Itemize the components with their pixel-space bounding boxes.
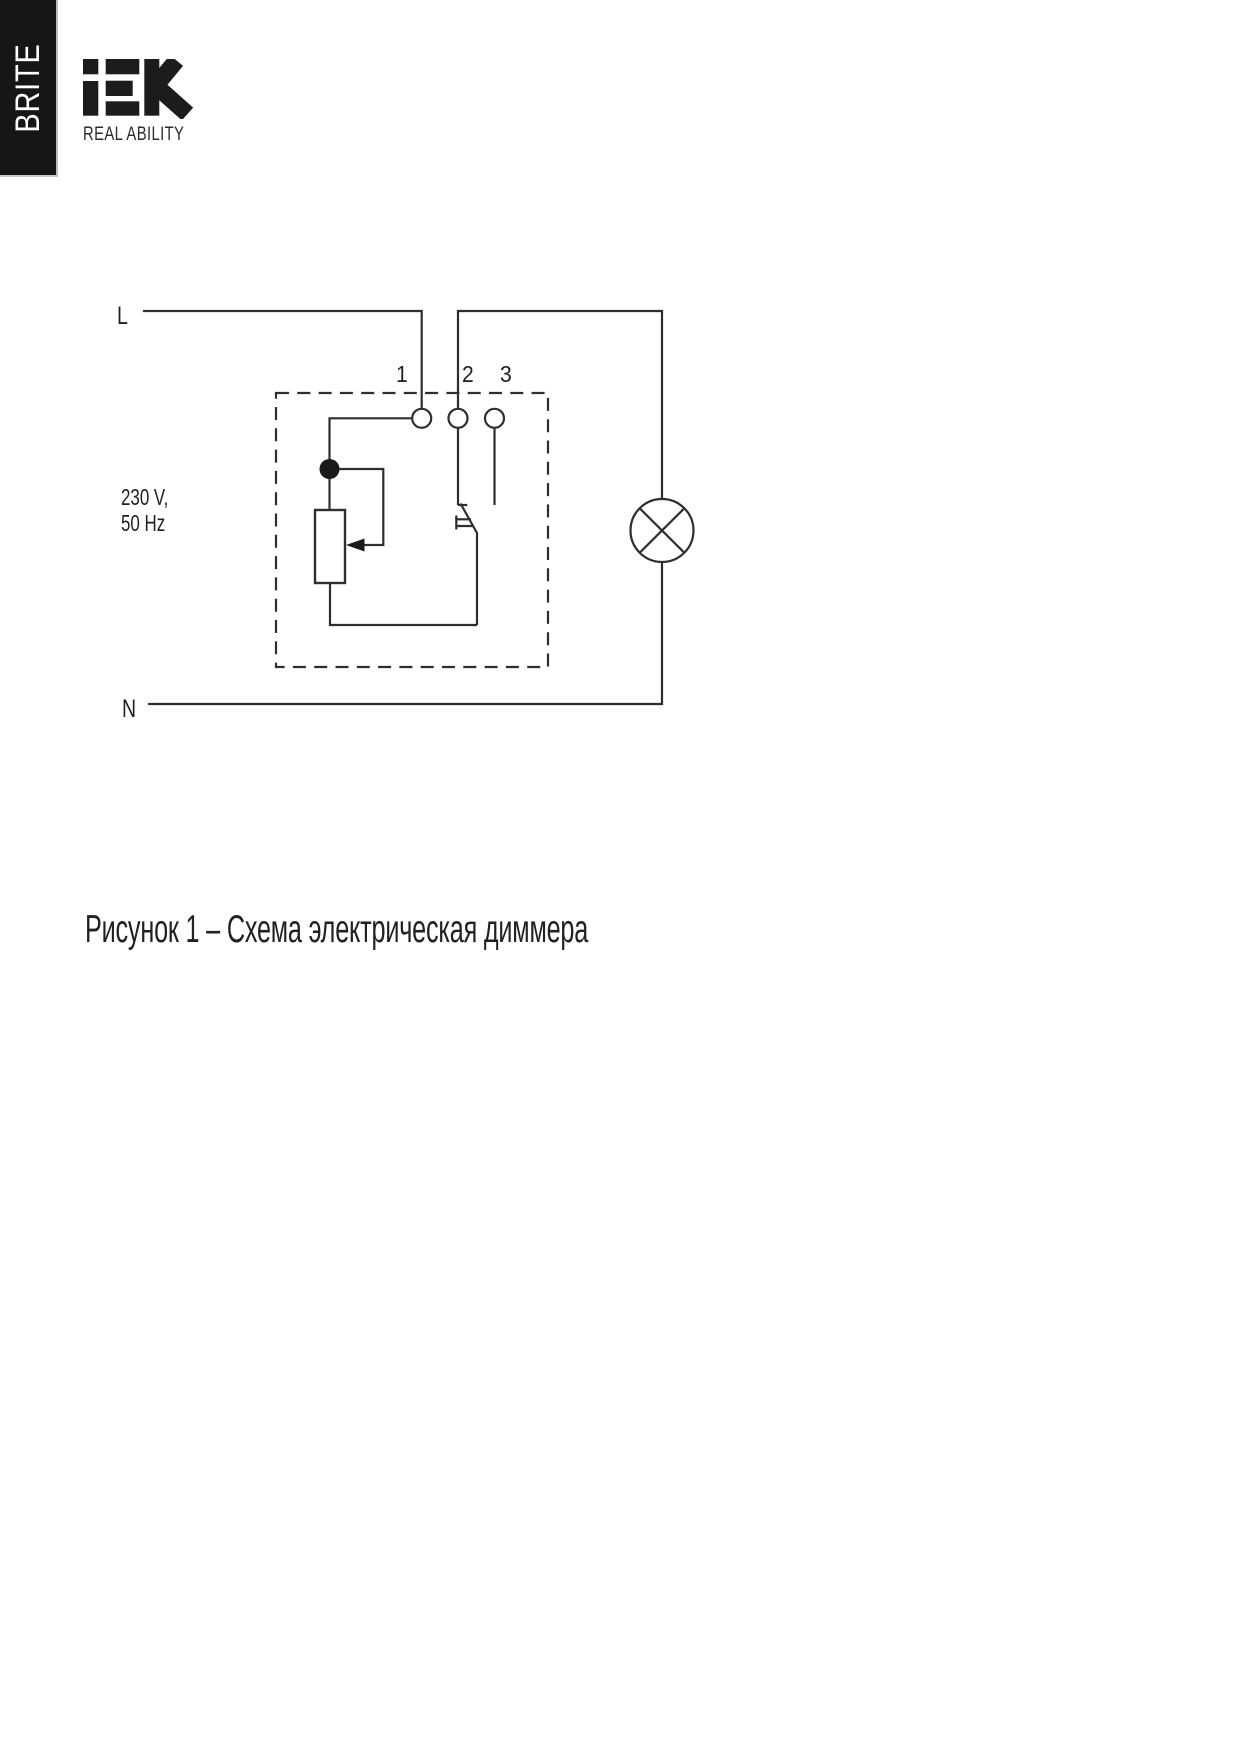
label-supply-rating: 230 V, 50 Hz bbox=[121, 485, 168, 536]
label-voltage-value: 230 V, bbox=[121, 485, 168, 511]
label-terminal-1: 1 bbox=[396, 363, 408, 387]
document-page: BRITE REAL ABILITY bbox=[0, 0, 1241, 1751]
label-neutral-N: N bbox=[122, 697, 136, 722]
label-terminal-2: 2 bbox=[462, 363, 474, 387]
wiper-arrowhead bbox=[346, 539, 365, 552]
lamp-symbol bbox=[631, 499, 694, 562]
wire-potentiometer-to-switch bbox=[330, 583, 477, 625]
potentiometer-symbol bbox=[315, 510, 345, 583]
terminal-2-circle bbox=[449, 409, 468, 428]
push-switch-symbol bbox=[456, 428, 477, 625]
label-line-L: L bbox=[117, 304, 128, 329]
terminal-3-circle bbox=[485, 409, 504, 428]
label-terminal-3: 3 bbox=[500, 363, 512, 387]
figure-caption: Рисунок 1 – Схема электрическая диммера bbox=[85, 911, 588, 950]
dimmer-circuit-diagram bbox=[0, 0, 1241, 1751]
junction-dot bbox=[320, 459, 340, 479]
terminal-1-circle bbox=[412, 409, 431, 428]
label-frequency-value: 50 Hz bbox=[121, 511, 168, 537]
wire-terminal2-to-lamp bbox=[458, 311, 662, 499]
wire-terminal1-to-potentiometer bbox=[330, 418, 413, 510]
wire-lamp-to-N bbox=[148, 562, 662, 704]
